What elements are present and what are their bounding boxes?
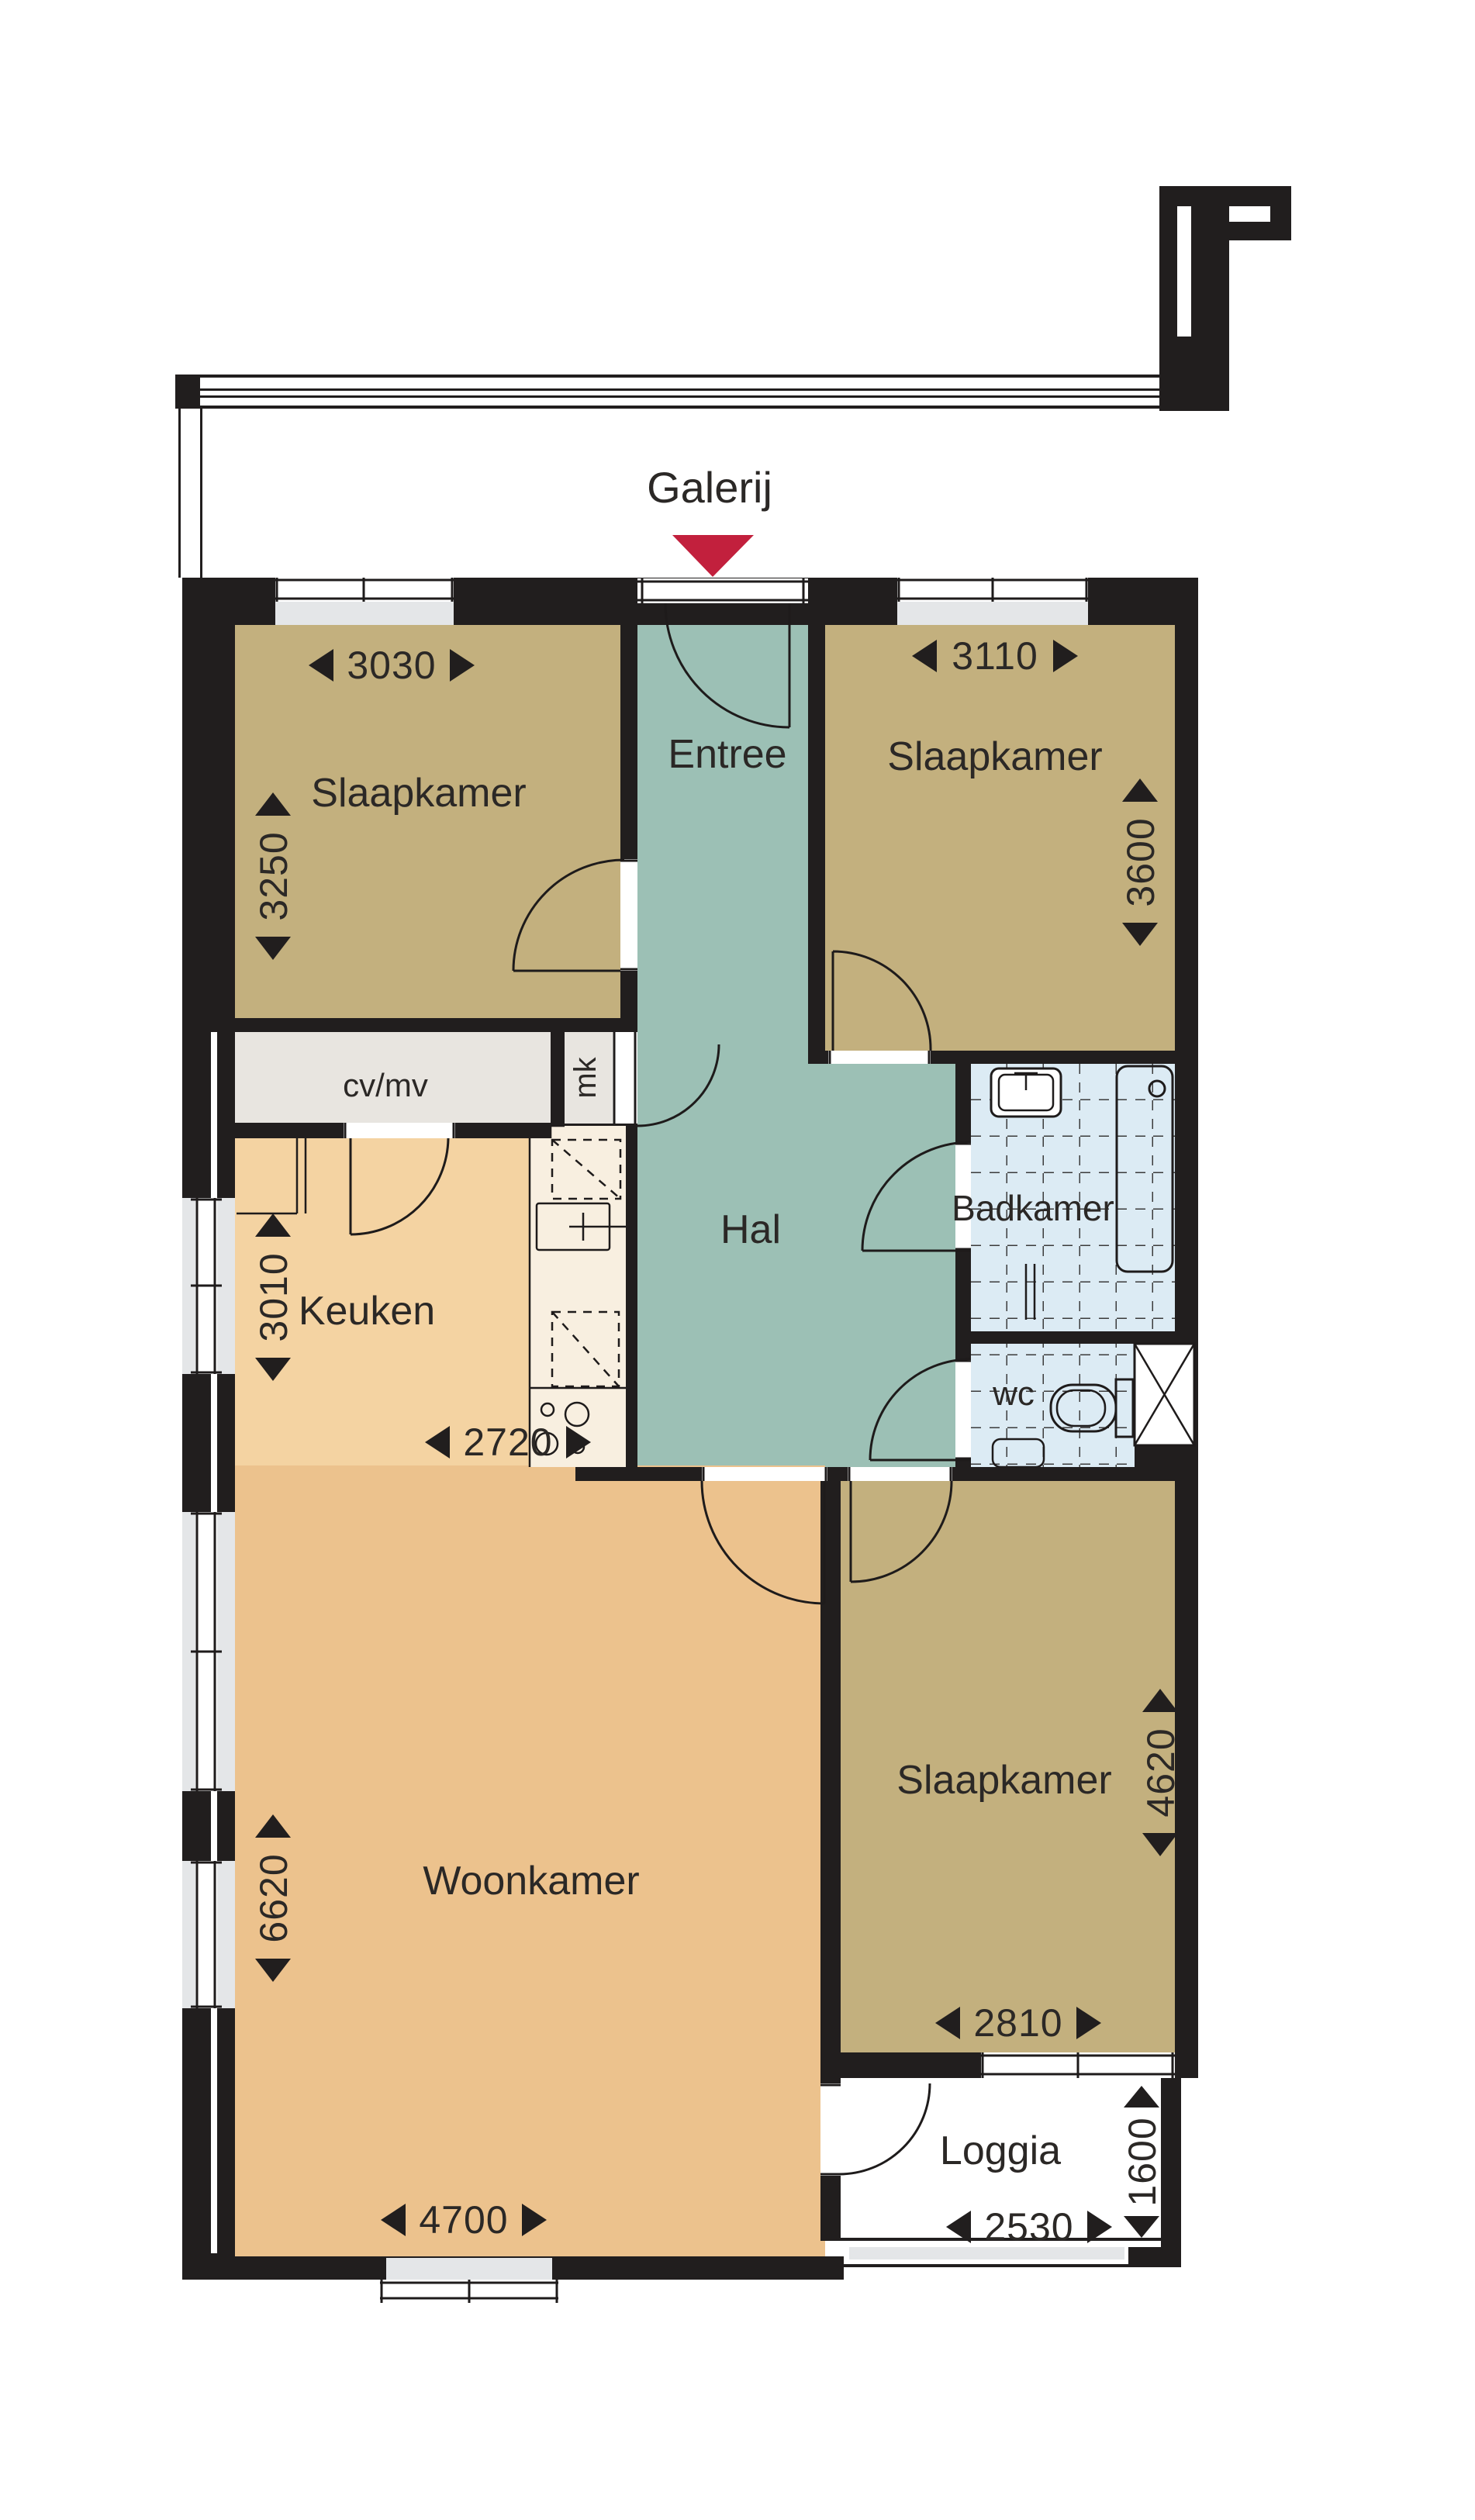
svg-text:6620: 6620 (252, 1853, 295, 1942)
wall-cvmv-right (551, 1032, 565, 1126)
front-door-threshold (637, 578, 808, 603)
floor-plan: Galerij Slaapkamer Slaapkamer Entree Hal… (0, 0, 1475, 2520)
galerij-end-cap (175, 375, 200, 409)
wall-entree-right (808, 625, 825, 1051)
galerij-label: Galerij (647, 463, 772, 512)
room-label-wc: wc (992, 1375, 1035, 1413)
window-woonkamer-lower (182, 1861, 235, 2008)
wall-right (1175, 578, 1198, 2078)
galerij-line-4 (200, 406, 1159, 409)
galerij-edge-left-inner (200, 409, 202, 578)
room-label-loggia: Loggia (940, 2128, 1061, 2173)
window-slaapkamer-topright (897, 578, 1088, 625)
galerij-line-2 (200, 388, 1159, 391)
room-label-cv-mv: cv/mv (343, 1067, 428, 1103)
svg-text:3110: 3110 (952, 634, 1038, 678)
line-mk-bottom (565, 1124, 637, 1126)
svg-text:2530: 2530 (984, 2205, 1073, 2249)
wall-hal-left (626, 1126, 637, 1467)
svg-text:3030: 3030 (347, 644, 436, 687)
room-label-entree: Entree (668, 732, 786, 777)
room-label-woonkamer: Woonkamer (423, 1859, 639, 1904)
floor-hal (637, 1064, 955, 1467)
galerij-structure (175, 186, 1291, 578)
window-slaapkamer-bottomright (981, 2052, 1175, 2078)
room-label-slaapkamer-topright: Slaapkamer (887, 734, 1102, 779)
svg-text:3010: 3010 (252, 1252, 295, 1341)
svg-text:4700: 4700 (419, 2198, 508, 2242)
wall-slaapkamer1-bottom (182, 1018, 637, 1032)
wall-slaapkamer3-bottom (820, 2052, 981, 2078)
galerij-line-3 (200, 395, 1159, 398)
window-woonkamer-upper (182, 1512, 235, 1791)
floor-entree (637, 602, 808, 1064)
svg-text:3600: 3600 (1119, 817, 1162, 906)
wall-left (182, 578, 235, 2280)
wall-badkamer-bottom (955, 1331, 1175, 1344)
galerij-line-1 (200, 375, 1159, 378)
entrance-arrow-icon (672, 535, 754, 577)
svg-text:2810: 2810 (973, 2001, 1062, 2045)
balustrade-line-2 (839, 2264, 1181, 2267)
stairwell-slot (1177, 206, 1191, 337)
stairwell-bar (1159, 186, 1229, 411)
balustrade-band (849, 2247, 1124, 2259)
window-woonkamer-bottom (380, 2258, 558, 2303)
window-slaapkamer-topleft (275, 578, 454, 625)
counter-surface (530, 1138, 626, 1467)
kitchen-counter (530, 1126, 626, 1467)
svg-text:4620: 4620 (1139, 1728, 1183, 1817)
svg-text:1600: 1600 (1121, 2117, 1164, 2206)
wall-below-shaft (1135, 1445, 1198, 1481)
galerij-edge-left-outer (178, 409, 181, 578)
room-label-slaapkamer-topleft: Slaapkamer (311, 771, 526, 816)
window-keuken (182, 1198, 235, 1374)
room-label-slaapkamer-bottomright: Slaapkamer (896, 1758, 1111, 1803)
room-label-hal: Hal (720, 1207, 781, 1252)
room-label-keuken: Keuken (299, 1289, 435, 1334)
shaft (1135, 1344, 1194, 1445)
counter-surface-top (551, 1126, 626, 1138)
svg-text:3250: 3250 (252, 831, 295, 920)
stairwell-notch (1229, 206, 1270, 222)
room-label-mk: mk (568, 1056, 603, 1098)
svg-text:2720: 2720 (463, 1421, 552, 1464)
room-label-badkamer: Badkamer (952, 1188, 1114, 1228)
